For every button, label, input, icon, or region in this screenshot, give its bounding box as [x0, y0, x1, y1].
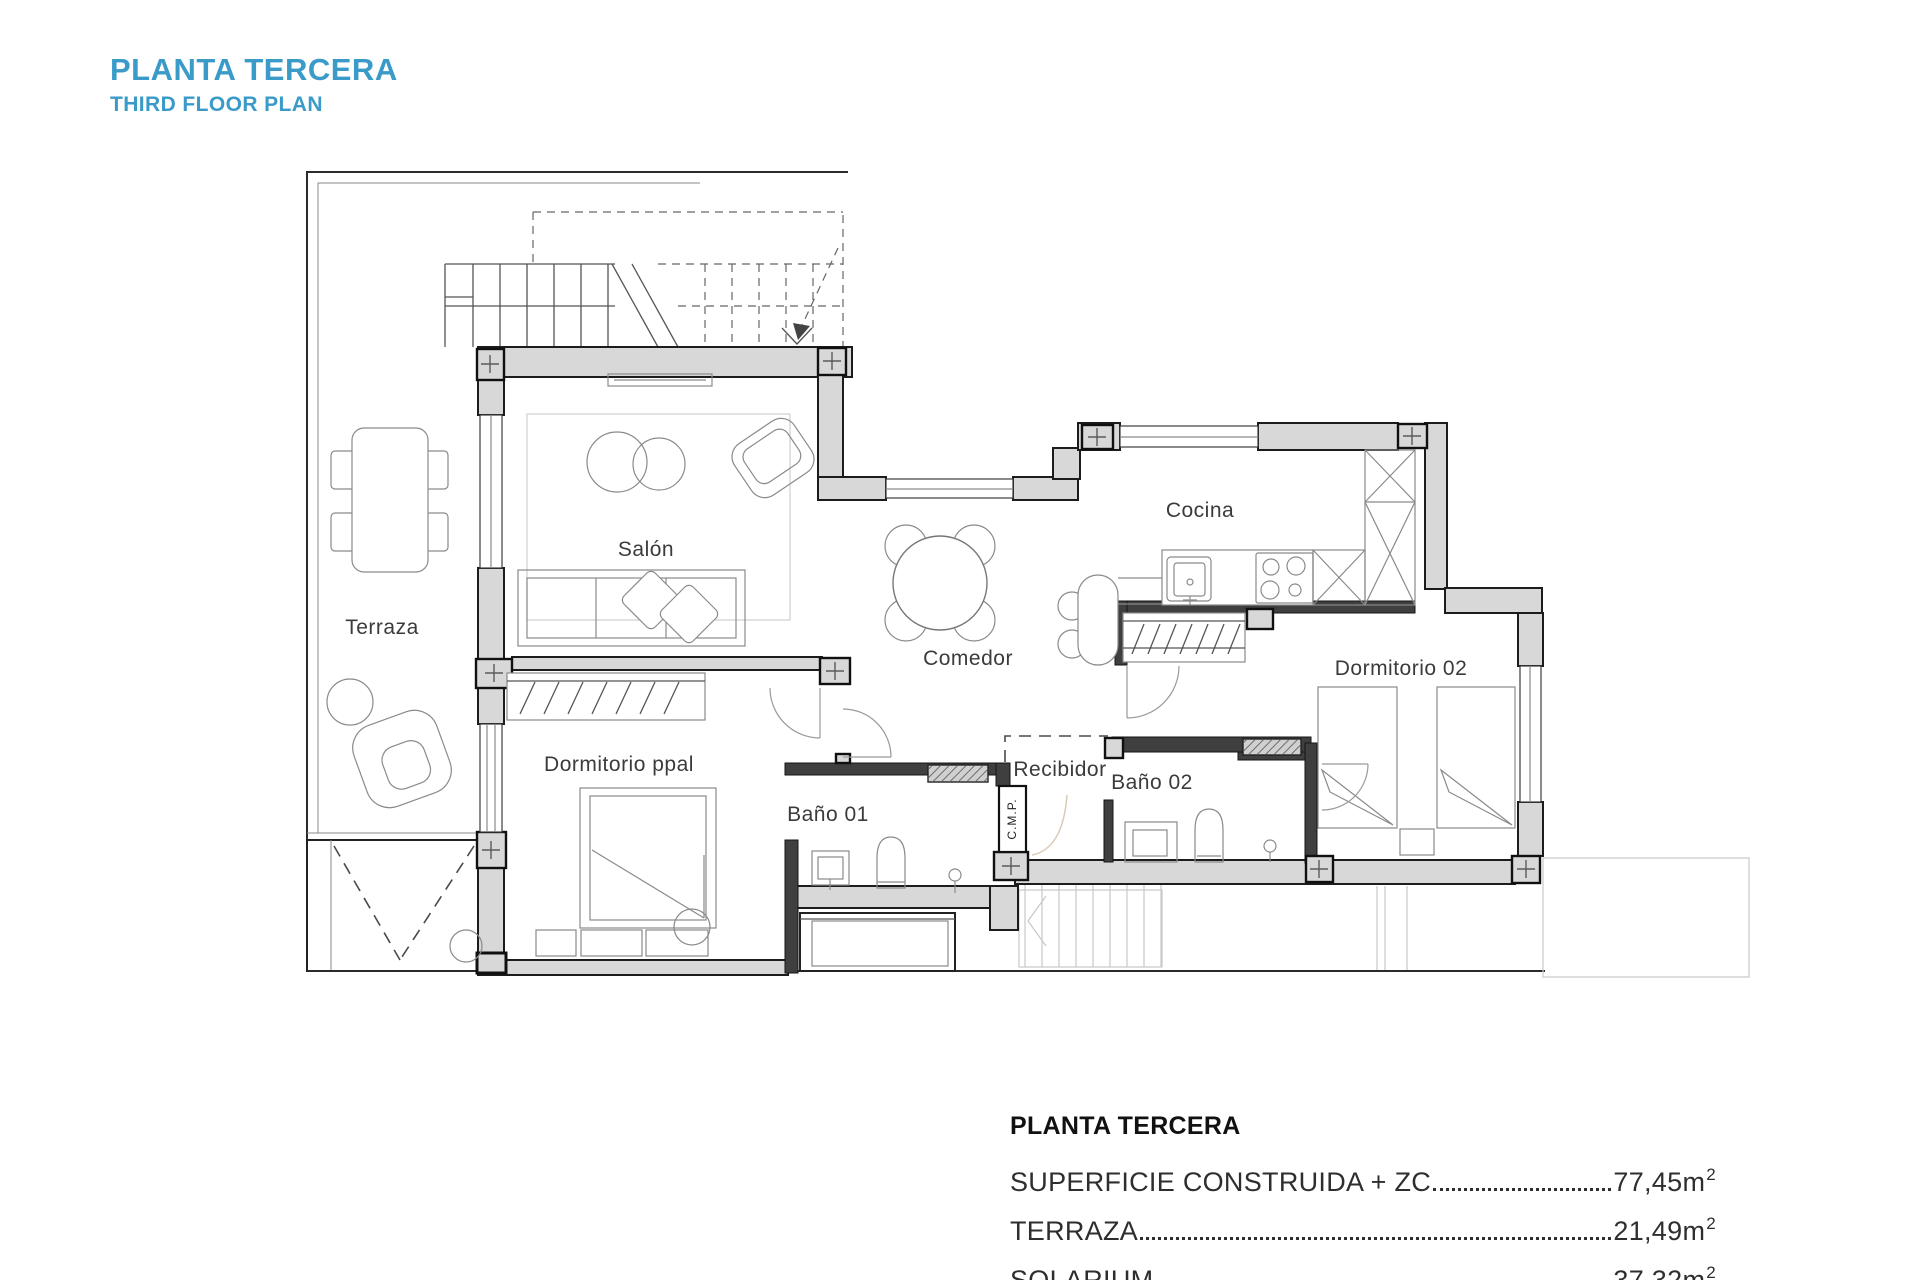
- floor-plan-drawing: [0, 0, 1920, 1280]
- dotted-leader: [1140, 1237, 1611, 1240]
- floor-plan-page: PLANTA TERCERA THIRD FLOOR PLAN: [0, 0, 1920, 1280]
- legend-value: 77,45m2: [1613, 1167, 1716, 1198]
- room-label-comedor: Comedor: [923, 647, 1013, 671]
- room-label-bano-01: Baño 01: [787, 803, 869, 827]
- staircase: [445, 212, 843, 347]
- legend-label: SUPERFICIE CONSTRUIDA + ZC: [1010, 1167, 1431, 1198]
- area-legend: PLANTA TERCERA SUPERFICIE CONSTRUIDA + Z…: [1010, 1112, 1716, 1280]
- room-label-bano-02: Baño 02: [1111, 771, 1193, 795]
- legend-label: TERRAZA: [1010, 1216, 1138, 1247]
- room-label-recibidor: Recibidor: [1013, 758, 1106, 782]
- dotted-leader: [1433, 1188, 1611, 1191]
- legend-value: 21,49m2: [1613, 1216, 1716, 1247]
- room-label-salon: Salón: [618, 538, 674, 562]
- salon-furniture: [518, 374, 820, 646]
- room-label-terraza: Terraza: [345, 616, 419, 640]
- legend-row-solarium: SOLARIUM 37,32m2: [1010, 1247, 1716, 1280]
- dining-table: [885, 525, 995, 641]
- twin-beds: [1318, 687, 1515, 855]
- legend-row-superficie: SUPERFICIE CONSTRUIDA + ZC 77,45m2: [1010, 1149, 1716, 1198]
- bathroom-02-fixtures: [1125, 809, 1276, 862]
- room-label-cocina: Cocina: [1166, 499, 1234, 523]
- stair-direction-arrow: [793, 323, 810, 340]
- legend-title: PLANTA TERCERA: [1010, 1112, 1716, 1141]
- legend-label: SOLARIUM: [1010, 1265, 1153, 1280]
- legend-row-terraza: TERRAZA 21,49m2: [1010, 1198, 1716, 1247]
- room-label-dormitorio-ppal: Dormitorio ppal: [544, 753, 694, 777]
- room-label-dormitorio-02: Dormitorio 02: [1335, 657, 1468, 681]
- room-label-cmp: C.M.P.: [1005, 798, 1019, 839]
- legend-value: 37,32m2: [1613, 1265, 1716, 1280]
